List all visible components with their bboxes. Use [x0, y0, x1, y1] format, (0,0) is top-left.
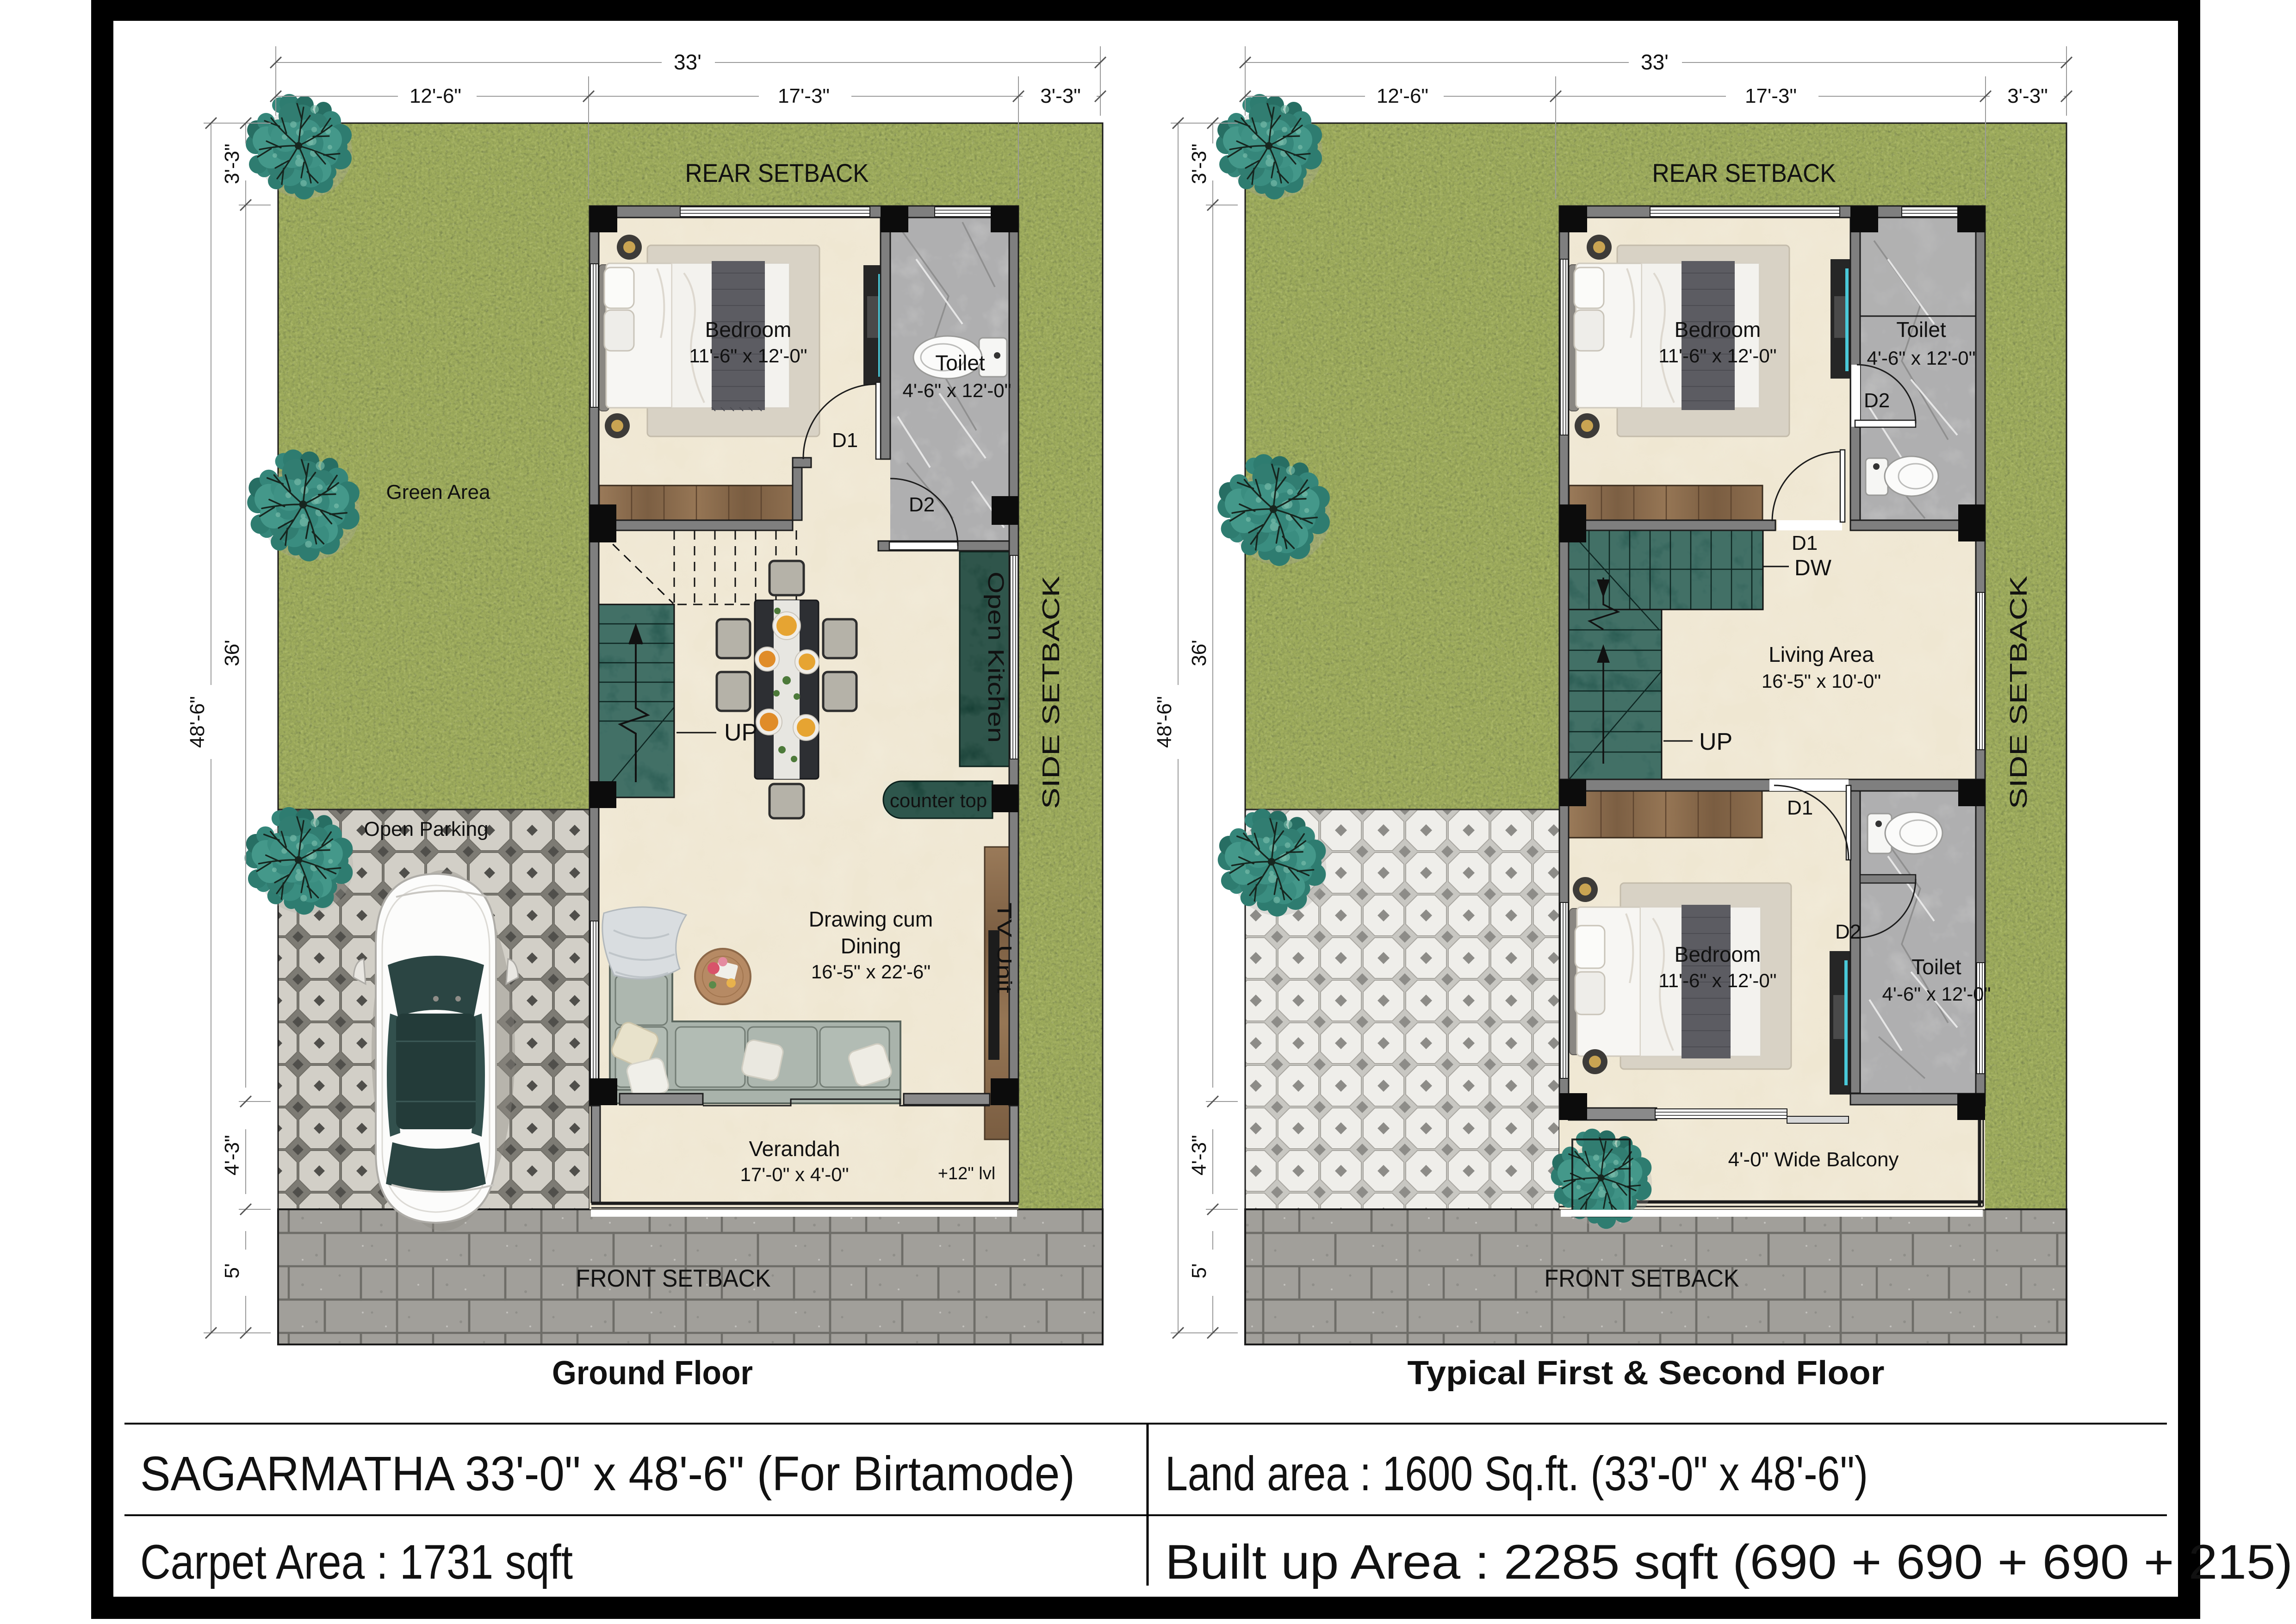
svg-text:D1: D1 [1792, 532, 1818, 554]
svg-text:UP: UP [724, 719, 757, 746]
svg-text:17'-0" x 4'-0": 17'-0" x 4'-0" [740, 1164, 849, 1185]
svg-text:3'-3": 3'-3" [221, 143, 243, 184]
svg-text:Built up Area : 2285 sqft (690: Built up Area : 2285 sqft (690 + 690 + 6… [1165, 1535, 2293, 1589]
svg-text:3'-3": 3'-3" [2007, 85, 2048, 107]
svg-text:36': 36' [221, 640, 243, 666]
svg-text:4'-6" x 12'-0": 4'-6" x 12'-0" [903, 380, 1011, 401]
svg-text:12'-6": 12'-6" [1377, 85, 1428, 107]
svg-text:48'-6": 48'-6" [186, 696, 209, 748]
svg-text:17'-3": 17'-3" [778, 85, 830, 107]
svg-text:Ground Floor: Ground Floor [552, 1355, 753, 1392]
svg-text:FRONT SETBACK: FRONT SETBACK [1545, 1265, 1739, 1292]
svg-text:D2: D2 [909, 493, 935, 516]
svg-text:4'-6" x 12'-0": 4'-6" x 12'-0" [1882, 983, 1991, 1005]
svg-text:+12" lvl: +12" lvl [938, 1164, 995, 1183]
svg-text:48'-6": 48'-6" [1153, 696, 1176, 748]
svg-text:33': 33' [1641, 50, 1669, 74]
svg-text:SAGARMATHA 33'-0" x 48'-6" (Fo: SAGARMATHA 33'-0" x 48'-6" (For Birtamod… [140, 1447, 1075, 1501]
svg-text:4'-3": 4'-3" [221, 1135, 243, 1176]
svg-text:33': 33' [674, 50, 701, 74]
svg-text:36': 36' [1188, 640, 1210, 666]
svg-text:12'-6": 12'-6" [410, 85, 461, 107]
svg-text:5': 5' [221, 1263, 243, 1279]
svg-text:Bedroom: Bedroom [705, 317, 792, 342]
svg-text:REAR SETBACK: REAR SETBACK [1652, 158, 1836, 187]
svg-text:11'-6" x 12'-0": 11'-6" x 12'-0" [1658, 345, 1776, 367]
svg-text:TV Unit: TV Unit [993, 902, 1016, 993]
svg-text:Open Parking: Open Parking [364, 818, 488, 840]
svg-text:Verandah: Verandah [749, 1137, 840, 1161]
svg-text:Green Area: Green Area [386, 481, 490, 504]
svg-text:Toilet: Toilet [1911, 955, 1961, 979]
svg-text:DW: DW [1794, 556, 1832, 580]
svg-text:D2: D2 [1864, 389, 1890, 412]
svg-text:11'-6" x 12'-0": 11'-6" x 12'-0" [1658, 970, 1776, 991]
svg-text:11'-6" x 12'-0": 11'-6" x 12'-0" [689, 345, 807, 367]
svg-text:D2: D2 [1835, 921, 1861, 943]
svg-text:Carpet Area : 1731 sqft: Carpet Area : 1731 sqft [140, 1535, 573, 1589]
svg-text:Land area : 1600 Sq.ft. (33'-0: Land area : 1600 Sq.ft. (33'-0" x 48'-6"… [1165, 1447, 1868, 1501]
svg-text:4'-3": 4'-3" [1188, 1135, 1210, 1176]
svg-text:3'-3": 3'-3" [1188, 143, 1210, 184]
svg-text:4'-0" Wide Balcony: 4'-0" Wide Balcony [1728, 1148, 1899, 1171]
svg-text:Typical First & Second Floor: Typical First & Second Floor [1408, 1355, 1885, 1392]
svg-text:16'-5" x 10'-0": 16'-5" x 10'-0" [1762, 670, 1881, 692]
svg-text:D1: D1 [1787, 796, 1813, 819]
svg-text:Toilet: Toilet [935, 351, 985, 375]
svg-text:Open Kitchen: Open Kitchen [983, 572, 1008, 743]
svg-text:FRONT SETBACK: FRONT SETBACK [576, 1265, 771, 1292]
svg-text:SIDE SETBACK: SIDE SETBACK [2005, 576, 2032, 809]
svg-text:16'-5" x 22'-6": 16'-5" x 22'-6" [811, 961, 931, 983]
svg-text:D1: D1 [832, 429, 858, 452]
svg-text:Toilet: Toilet [1896, 317, 1946, 342]
svg-text:Bedroom: Bedroom [1675, 942, 1761, 966]
svg-text:17'-3": 17'-3" [1745, 85, 1797, 107]
svg-text:4'-6" x 12'-0": 4'-6" x 12'-0" [1867, 347, 1976, 369]
svg-text:3'-3": 3'-3" [1040, 85, 1081, 107]
svg-text:REAR SETBACK: REAR SETBACK [685, 158, 869, 187]
svg-text:Bedroom: Bedroom [1675, 317, 1761, 342]
svg-text:Dining: Dining [841, 934, 901, 958]
svg-text:UP: UP [1699, 728, 1732, 755]
svg-text:SIDE SETBACK: SIDE SETBACK [1038, 576, 1065, 809]
svg-text:counter top: counter top [890, 790, 987, 811]
svg-text:Drawing cum: Drawing cum [809, 907, 933, 931]
svg-text:Living Area: Living Area [1769, 642, 1874, 666]
svg-text:5': 5' [1188, 1263, 1210, 1279]
